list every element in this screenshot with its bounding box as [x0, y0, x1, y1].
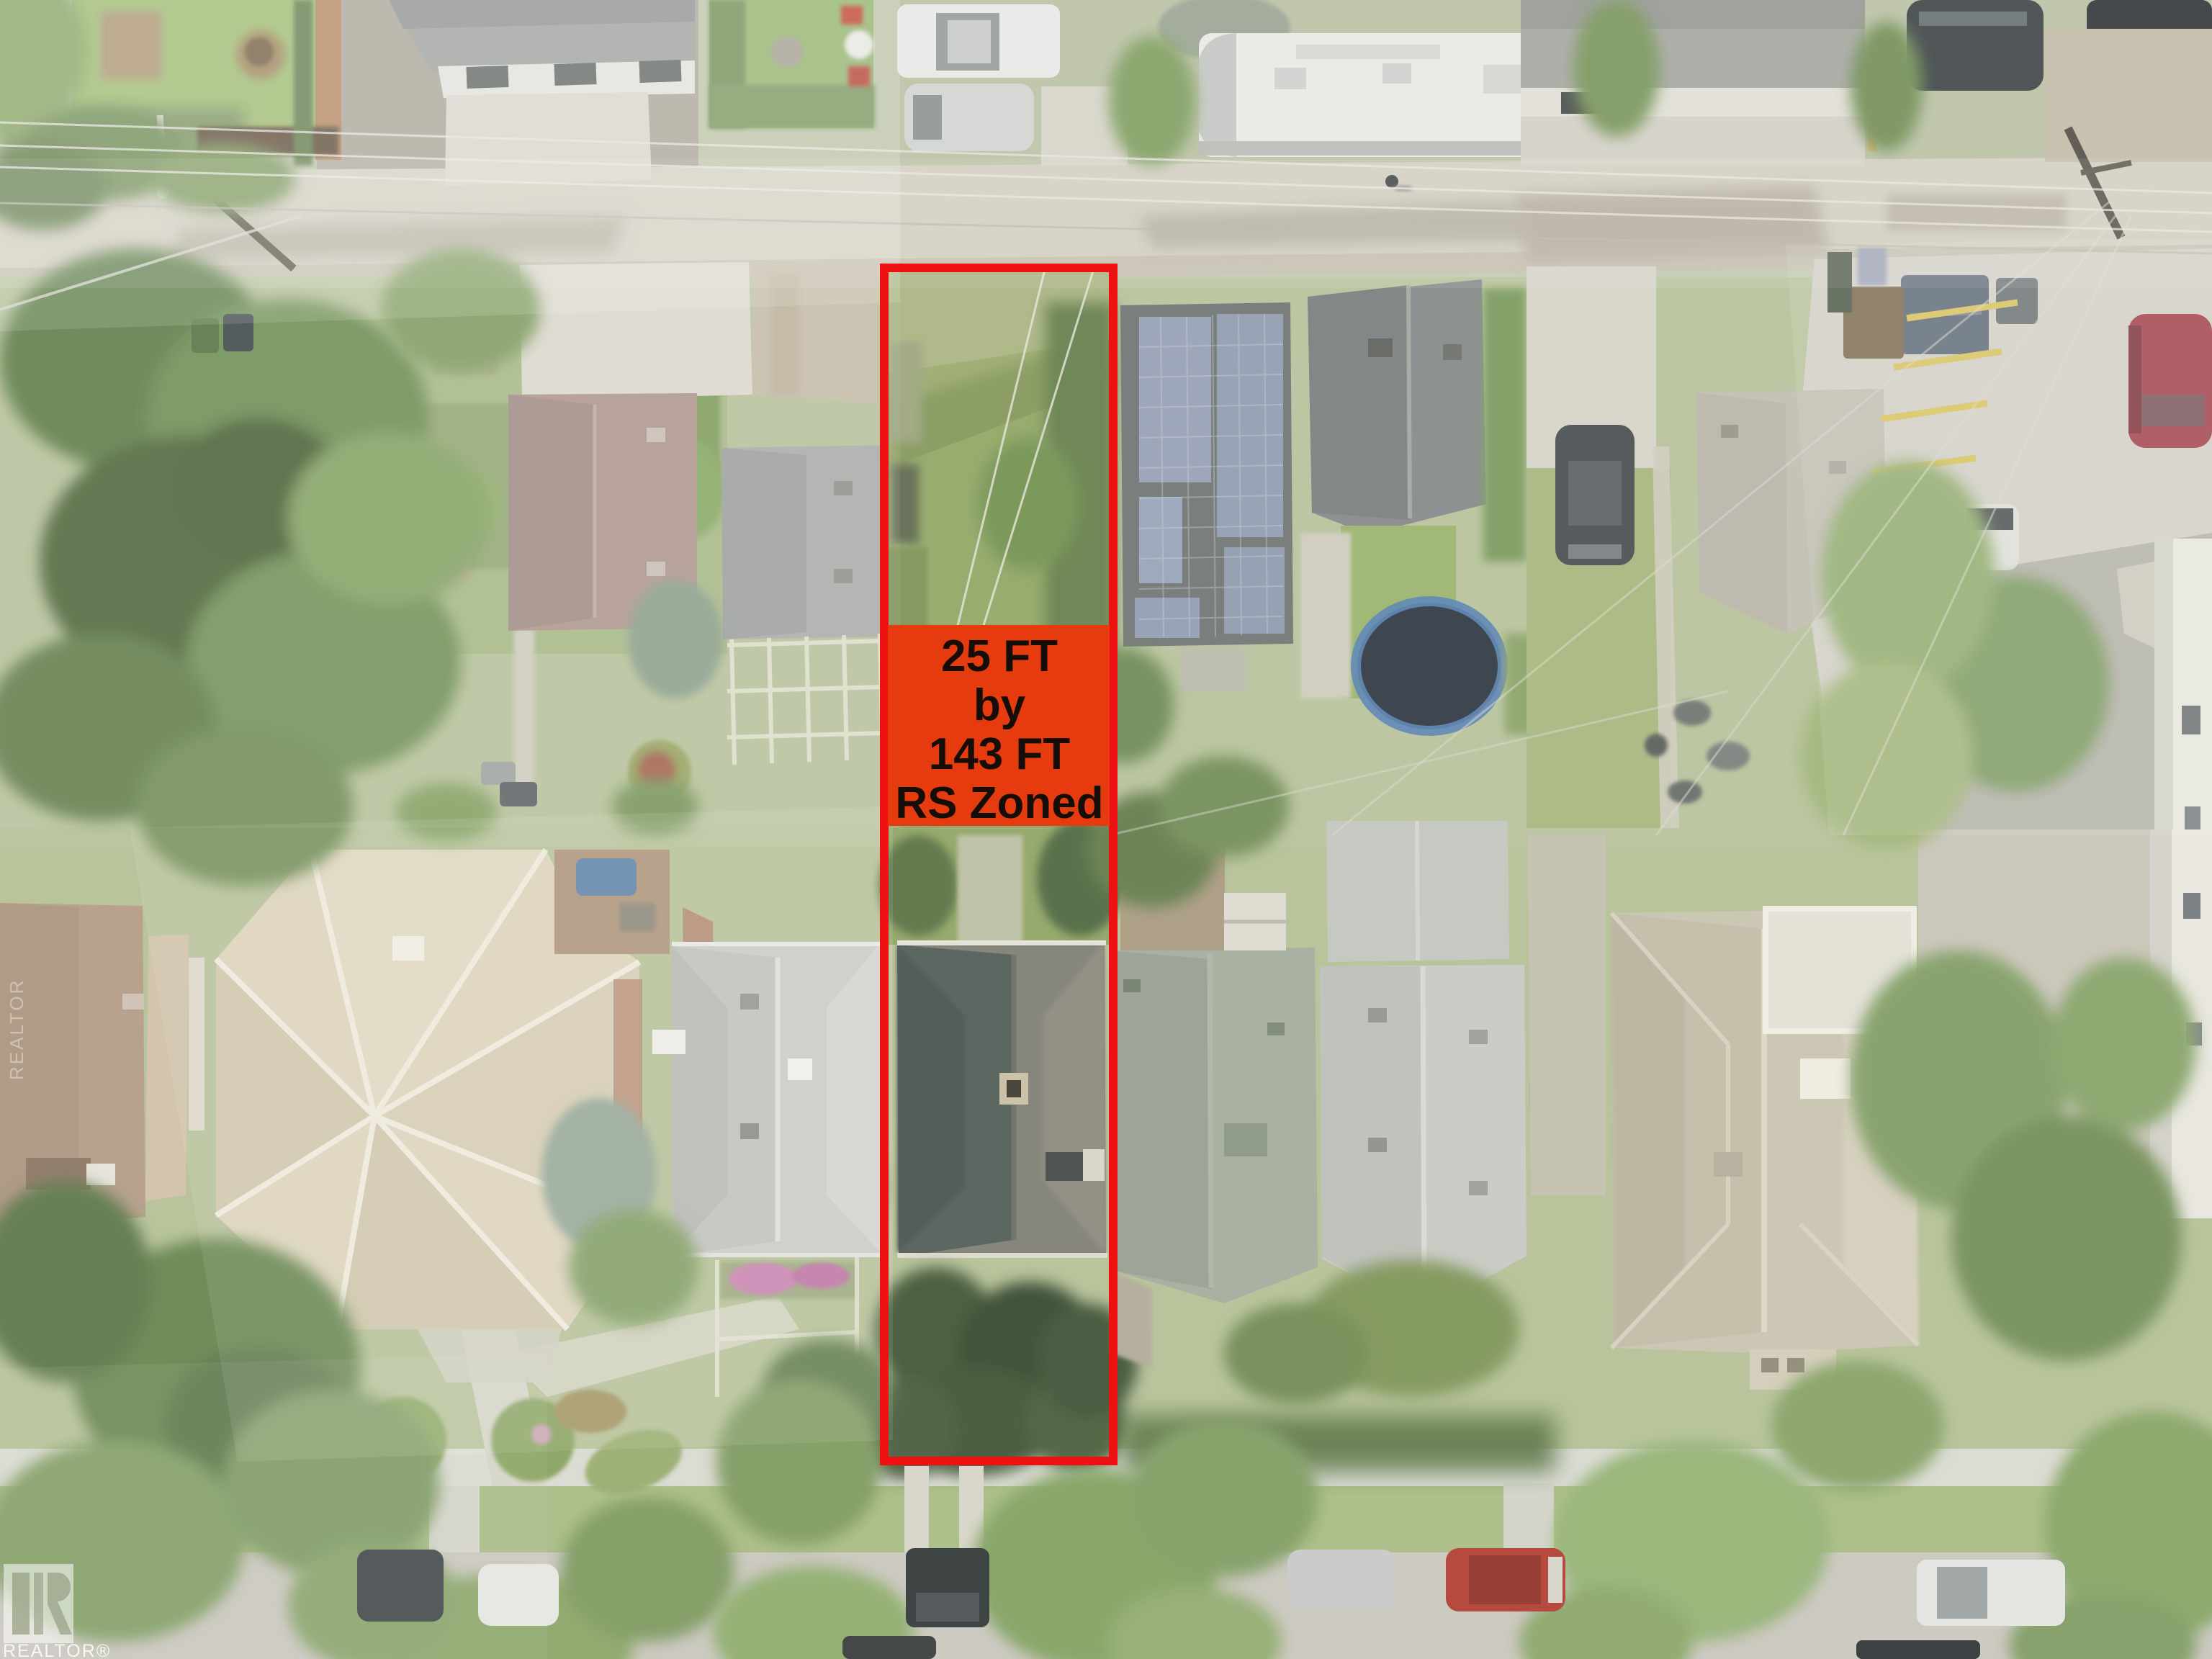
svg-text:143 FT: 143 FT: [929, 729, 1071, 779]
svg-text:REALTOR: REALTOR: [6, 979, 27, 1080]
svg-text:REALTOR®: REALTOR®: [3, 1641, 111, 1659]
svg-text:25 FT: 25 FT: [941, 631, 1058, 681]
svg-text:RS Zoned: RS Zoned: [895, 778, 1103, 828]
svg-text:by: by: [974, 680, 1026, 730]
